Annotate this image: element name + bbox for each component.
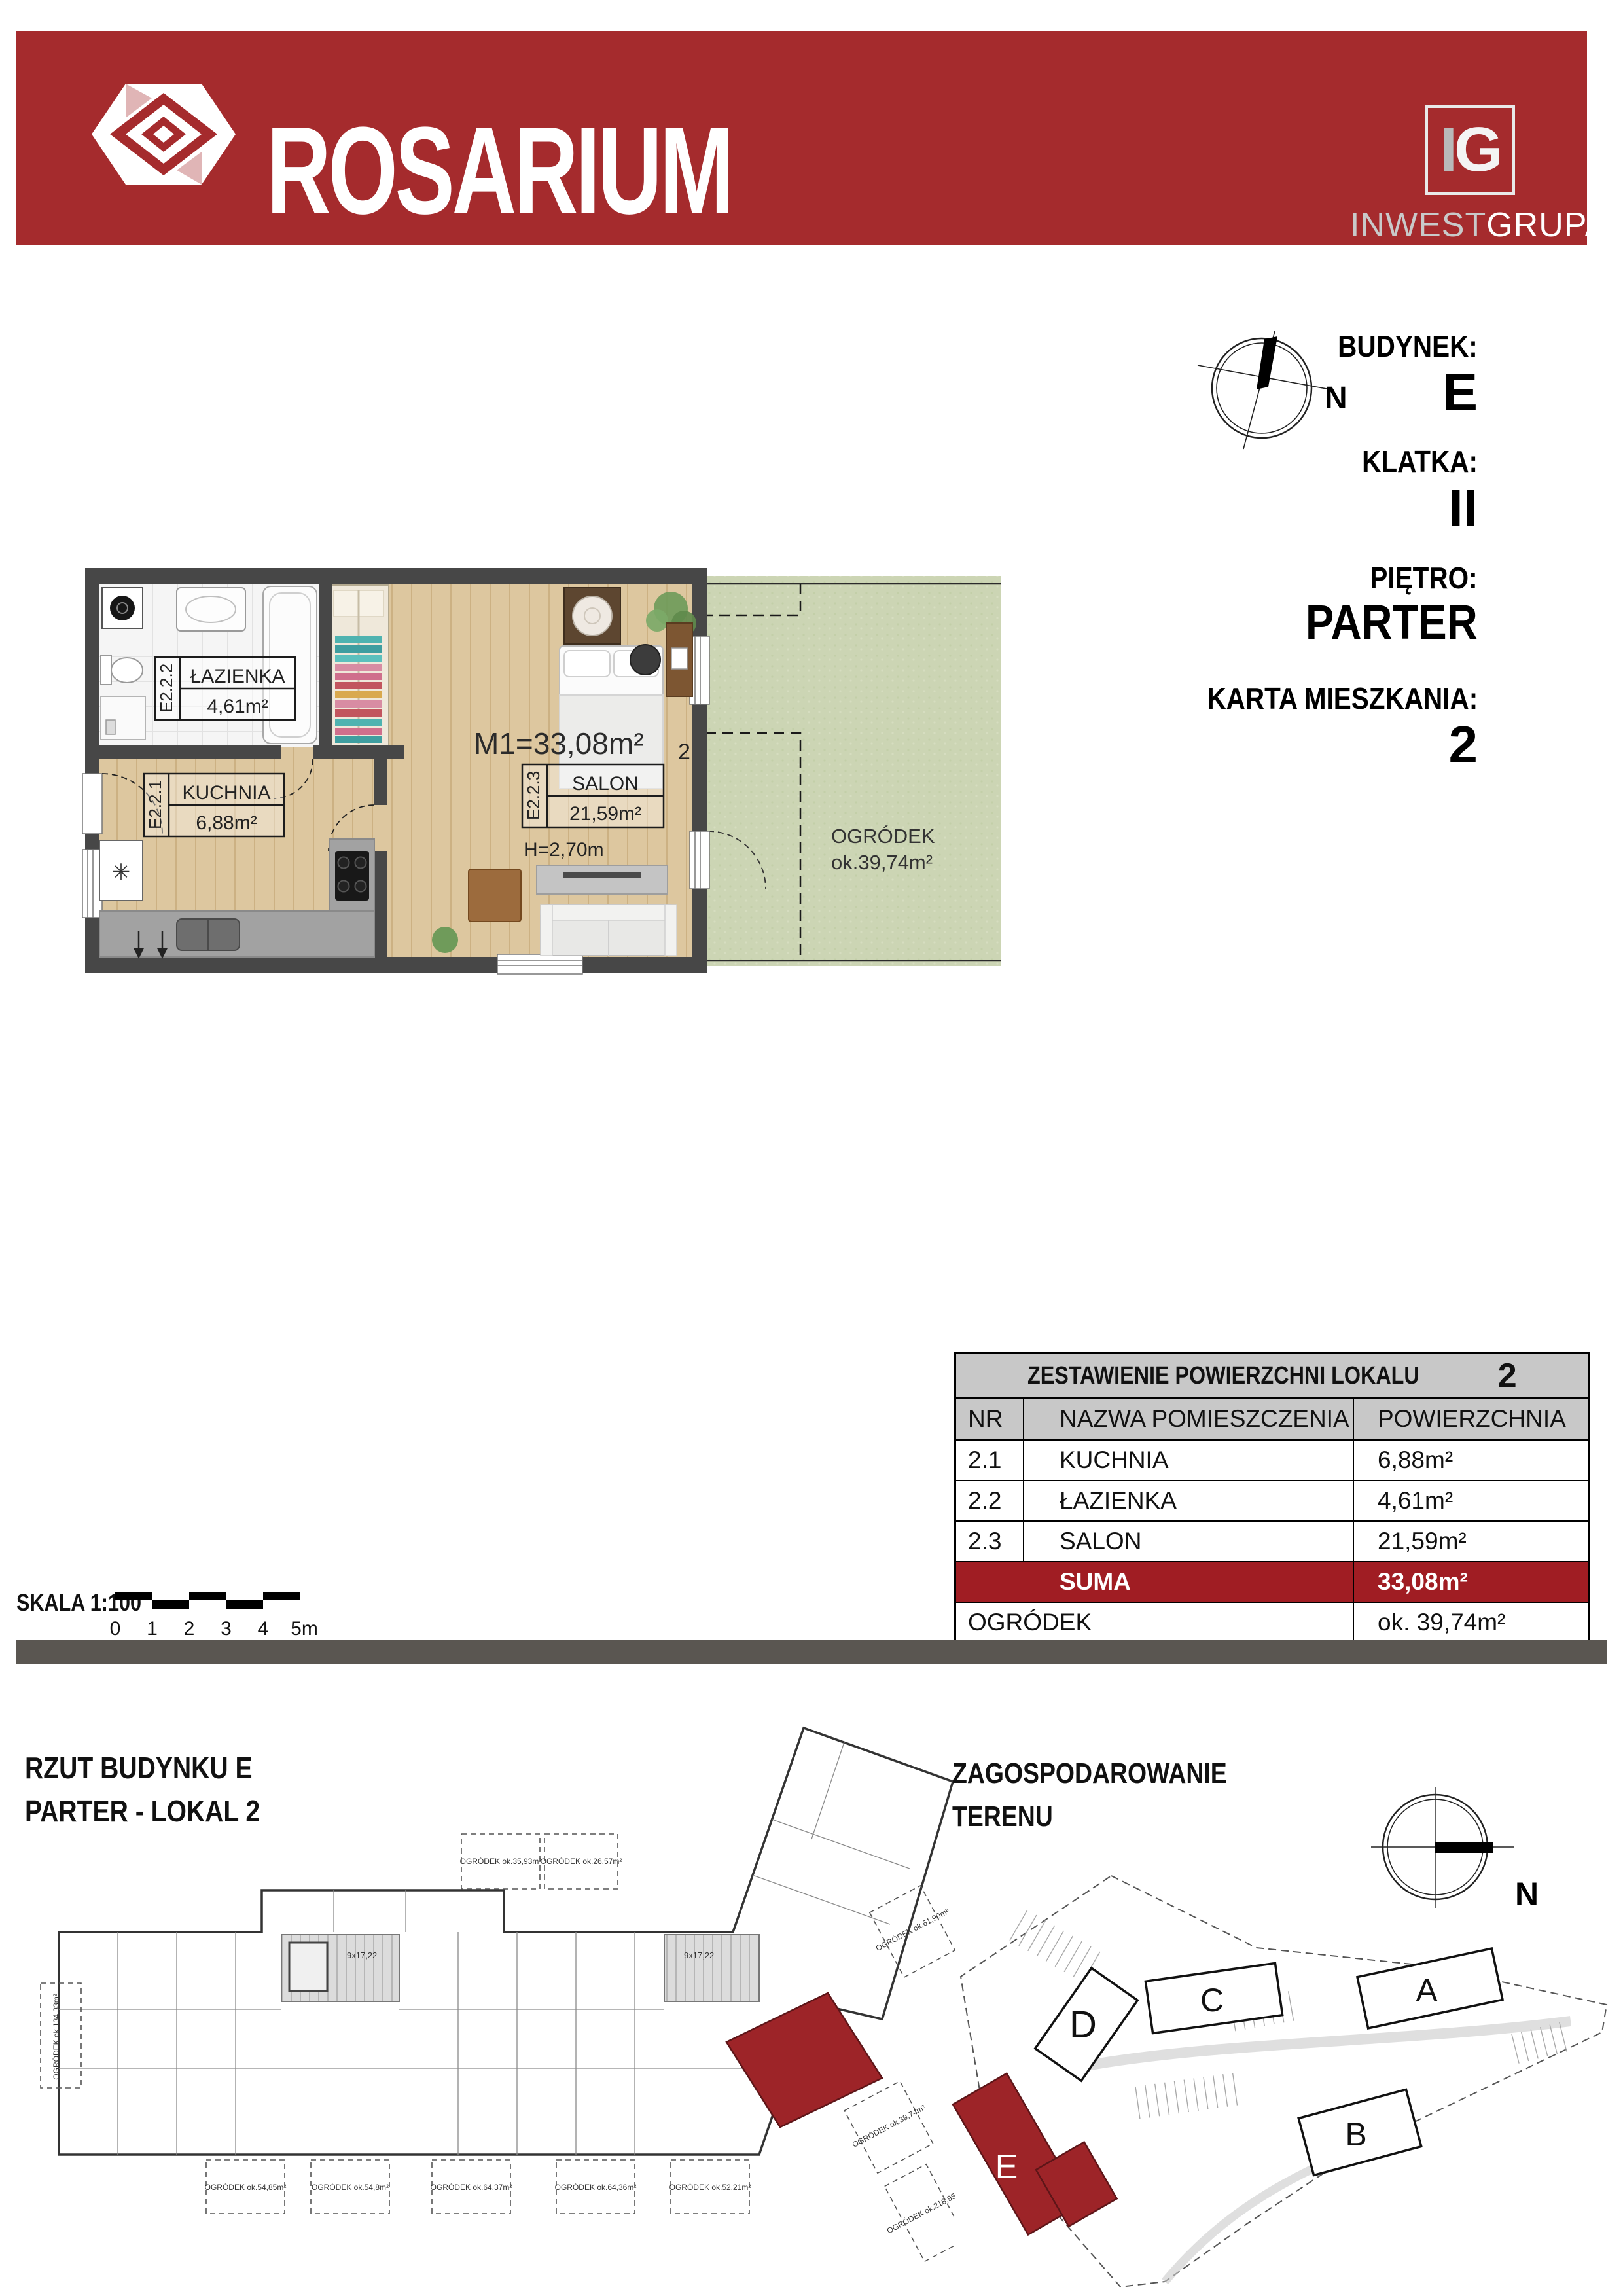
garden-name-label: OGRÓDEK <box>831 825 935 848</box>
floor-value: PARTER <box>1282 598 1478 647</box>
table-title: ZESTAWIENIE POWIERZCHNI LOKALU <box>1027 1362 1419 1390</box>
building-d-label: D <box>1069 2003 1097 2046</box>
stair-note: 9x17,22 <box>347 1950 377 1960</box>
apartment-card-page: ROSARIUM I G INWESTGRUPA N BUDYNEK: E KL… <box>0 0 1623 2296</box>
svg-text:OGRÓDEK ok.54,85m²: OGRÓDEK ok.54,85m² <box>205 2182 287 2192</box>
site-plan-map: D C A B E <box>949 1871 1616 2296</box>
floor-label: PIĘTRO: <box>1355 560 1478 596</box>
garden-label: OGRÓDEK <box>956 1603 1353 1642</box>
row-name: ŁAZIENKA <box>1024 1481 1353 1520</box>
row-area: 21,59m² <box>1353 1522 1588 1561</box>
scale-tick: 4 <box>258 1618 269 1640</box>
building-e-plan: 9x17,22 9x17,22 OGRÓDEK ok.134,33m² OGRÓ… <box>39 1702 955 2296</box>
rosarium-rose-logo-icon <box>92 79 236 190</box>
row-name: SALON <box>1024 1522 1353 1561</box>
row-nr: 2.3 <box>956 1522 1024 1561</box>
plant <box>432 927 458 953</box>
scale-tick: 2 <box>184 1618 195 1640</box>
garden-area-label: ok.39,74m² <box>831 851 933 874</box>
sofa <box>541 905 677 956</box>
table-title-number: 2 <box>1498 1356 1517 1395</box>
suma-area: 33,08m² <box>1353 1562 1588 1602</box>
table-row: 2.1 KUCHNIA 6,88m² <box>956 1439 1588 1480</box>
kitchen-area: 6,88m² <box>196 812 257 834</box>
brand-title: ROSARIUM <box>266 109 912 233</box>
bathroom-code: E2.2.2 <box>156 664 176 713</box>
garden-area: OGRÓDEK ok.39,74m² <box>704 576 1001 966</box>
site-boundary <box>961 1876 1607 2287</box>
building-b-label: B <box>1345 2116 1366 2153</box>
svg-text:OGRÓDEK ok.218,95m²: OGRÓDEK ok.218,95m² <box>885 2187 955 2236</box>
kitchen-label-box: E2.2.1 KUCHNIA 6,88m² <box>144 774 284 836</box>
table-garden-row: OGRÓDEK ok. 39,74m² <box>956 1602 1588 1642</box>
svg-text:OGRÓDEK ok.64,37m²: OGRÓDEK ok.64,37m² <box>431 2182 512 2192</box>
wardrobe <box>329 585 389 746</box>
table-header-row: NR NAZWA POMIESZCZENIA POWIERZCHNIA <box>956 1397 1588 1439</box>
bathroom-area: 4,61m² <box>207 696 268 717</box>
ig-logo-g: G <box>1454 118 1500 181</box>
north-label: N <box>1325 381 1347 416</box>
card-value: 2 <box>1449 719 1478 771</box>
card-label: KARTA MIESZKANIA: <box>1170 681 1478 716</box>
row-nr: 2.1 <box>956 1441 1024 1480</box>
scale-tick: 0 <box>110 1618 121 1640</box>
kitchen-name: KUCHNIA <box>182 782 270 804</box>
ceiling-height-label: H=2,70m <box>524 839 604 861</box>
svg-text:OGRÓDEK ok.64,36m²: OGRÓDEK ok.64,36m² <box>555 2182 637 2192</box>
scale-tick: 3 <box>221 1618 232 1640</box>
scale-bar: 0 1 2 3 4 5m <box>98 1583 321 1643</box>
header-banner: ROSARIUM I G INWESTGRUPA <box>16 31 1587 245</box>
col-header-name: NAZWA POMIESZCZENIA <box>1024 1399 1353 1439</box>
kitchen-code: E2.2.1 <box>145 780 165 829</box>
table-title-row: ZESTAWIENIE POWIERZCHNI LOKALU 2 <box>956 1354 1588 1397</box>
garden-area: ok. 39,74m² <box>1353 1603 1588 1642</box>
svg-text:OGRÓDEK ok.39,74m²: OGRÓDEK ok.39,74m² <box>850 2102 927 2149</box>
building-c-label: C <box>1200 1982 1224 2018</box>
col-header-area: POWIERZCHNIA <box>1353 1399 1588 1439</box>
ig-logo-i: I <box>1440 118 1454 181</box>
company-name: INWESTGRUPA <box>1350 206 1584 245</box>
svg-text:OGRÓDEK ok.35,93m²: OGRÓDEK ok.35,93m² <box>460 1856 542 1866</box>
building-e-label: E <box>995 2148 1018 2186</box>
site-plan-title-1: ZAGOSPODAROWANIE <box>952 1759 1275 1788</box>
svg-text:OGRÓDEK ok.54,8m²: OGRÓDEK ok.54,8m² <box>312 2182 389 2192</box>
stair-note: 9x17,22 <box>684 1950 714 1960</box>
section-divider <box>16 1640 1607 1664</box>
unit-floor-plan: OGRÓDEK ok.39,74m² <box>79 558 1008 984</box>
table-row: 2.2 ŁAZIENKA 4,61m² <box>956 1480 1588 1520</box>
site-buildings: D C A B E <box>953 1948 1503 2246</box>
bathroom-label-box: E2.2.2 ŁAZIENKA 4,61m² <box>155 657 295 720</box>
salon-name: SALON <box>572 773 639 795</box>
bathroom-name: ŁAZIENKA <box>190 666 285 687</box>
building-e <box>953 2057 1117 2246</box>
scale-tick: 1 <box>147 1618 158 1640</box>
unit-number-label: 2 <box>678 740 690 764</box>
col-header-nr: NR <box>956 1399 1024 1439</box>
site-plan-title-2: TERENU <box>952 1803 1071 1831</box>
svg-text:OGRÓDEK ok.52,21m²: OGRÓDEK ok.52,21m² <box>669 2182 751 2192</box>
svg-text:OGRÓDEK ok.26,57m²: OGRÓDEK ok.26,57m² <box>541 1856 622 1866</box>
building-a-label: A <box>1416 1972 1438 2009</box>
area-summary-table: ZESTAWIENIE POWIERZCHNI LOKALU 2 NR NAZW… <box>954 1352 1590 1644</box>
building-value: E <box>1443 367 1478 419</box>
suma-label: SUMA <box>956 1562 1353 1602</box>
svg-text:OGRÓDEK ok.134,33m²: OGRÓDEK ok.134,33m² <box>51 1994 61 2079</box>
row-area: 6,88m² <box>1353 1441 1588 1480</box>
building-label: BUDYNEK: <box>1319 329 1478 364</box>
salon-area: 21,59m² <box>569 803 641 825</box>
row-name: KUCHNIA <box>1024 1441 1353 1480</box>
freezer-symbol: ✳ <box>112 860 131 885</box>
table-row: 2.3 SALON 21,59m² <box>956 1520 1588 1561</box>
scale-tick: 5m <box>291 1618 318 1640</box>
row-nr: 2.2 <box>956 1481 1024 1520</box>
staircase-value: II <box>1449 482 1478 534</box>
ig-logo-icon: I G <box>1425 105 1515 195</box>
table-suma-row: SUMA 33,08m² <box>956 1561 1588 1602</box>
total-area-label: M1=33,08m² <box>474 726 644 761</box>
row-area: 4,61m² <box>1353 1481 1588 1520</box>
staircase-label: KLATKA: <box>1346 444 1478 479</box>
salon-code: E2.2.3 <box>524 771 543 820</box>
